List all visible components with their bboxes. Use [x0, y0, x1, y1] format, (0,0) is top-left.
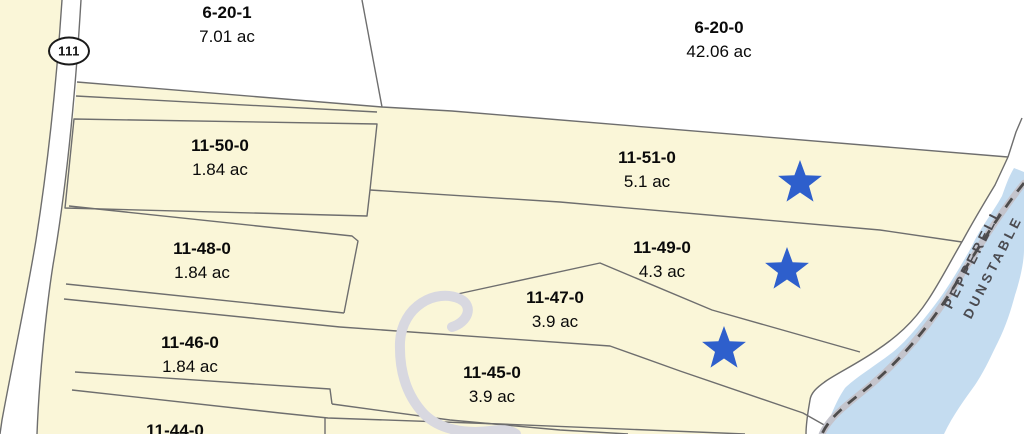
parcel-id: 11-44-0	[146, 419, 204, 434]
parcel-acreage: 3.9 ac	[526, 310, 584, 334]
parcel-label-11-51-0: 11-51-0 5.1 ac	[618, 146, 676, 194]
parcel-id: 11-47-0	[526, 286, 584, 310]
parcel-acreage: 1.84 ac	[161, 355, 219, 379]
parcel-acreage: 7.01 ac	[199, 25, 255, 49]
parcel-label-11-47-0: 11-47-0 3.9 ac	[526, 286, 584, 334]
parcel-label-6-20-0: 6-20-0 42.06 ac	[686, 16, 751, 64]
parcel-acreage: 3.9 ac	[463, 385, 521, 409]
parcel-label-11-46-0: 11-46-0 1.84 ac	[161, 331, 219, 379]
parcel-acreage: 5.1 ac	[618, 170, 676, 194]
parcel-label-6-20-1: 6-20-1 7.01 ac	[199, 1, 255, 49]
parcel-label-11-48-0: 11-48-0 1.84 ac	[173, 237, 231, 285]
parcel-label-11-45-0: 11-45-0 3.9 ac	[463, 361, 521, 409]
parcel-acreage: 42.06 ac	[686, 40, 751, 64]
parcel-label-11-49-0: 11-49-0 4.3 ac	[633, 236, 691, 284]
parcel-label-11-44-0: 11-44-0	[146, 419, 204, 434]
parcel-acreage: 1.84 ac	[191, 158, 249, 182]
parcel-id: 11-45-0	[463, 361, 521, 385]
parcel-id: 6-20-1	[199, 1, 255, 25]
parcel-id: 11-46-0	[161, 331, 219, 355]
parcel-acreage: 1.84 ac	[173, 261, 231, 285]
parcel-id: 11-50-0	[191, 134, 249, 158]
parcel-id: 6-20-0	[686, 16, 751, 40]
route-number: 111	[58, 44, 80, 59]
parcel-acreage: 4.3 ac	[633, 260, 691, 284]
parcel-id: 11-48-0	[173, 237, 231, 261]
parcel-id: 11-49-0	[633, 236, 691, 260]
parcel-map-view[interactable]: 111 6-20-1 7.01 ac 6-20-0 42.06 ac 11-50…	[0, 0, 1024, 434]
route-111-shield: 111	[48, 37, 90, 66]
parcel-label-11-50-0: 11-50-0 1.84 ac	[191, 134, 249, 182]
parcel-id: 11-51-0	[618, 146, 676, 170]
